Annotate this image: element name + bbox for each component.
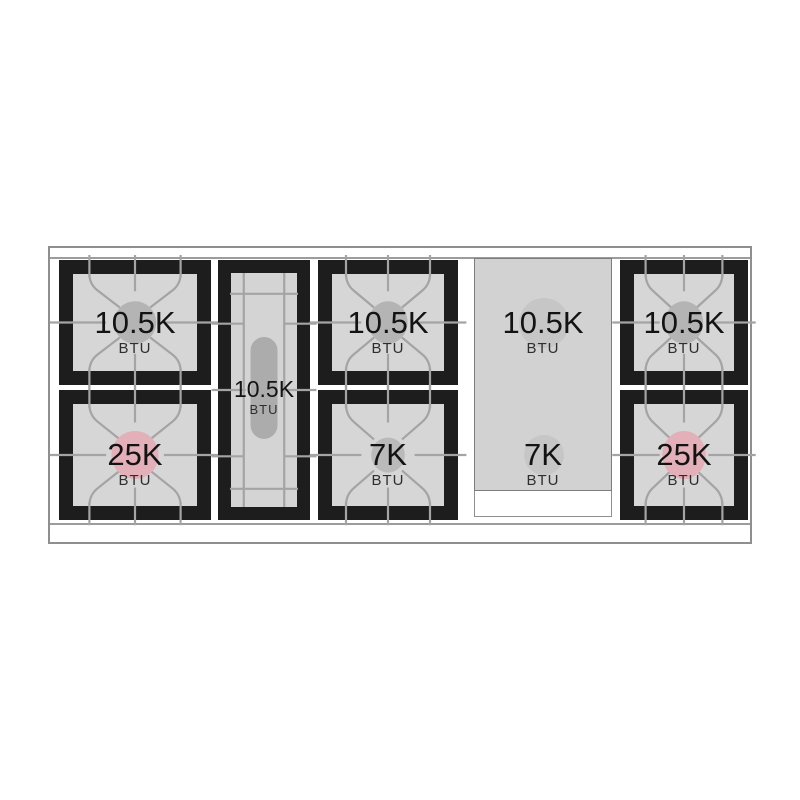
grate-lines (318, 390, 458, 520)
grate-lines (218, 260, 310, 520)
power-burner-ring (662, 431, 706, 479)
burner-grate-bottom-left: 25K BTU (59, 390, 211, 520)
grate-lines (620, 260, 748, 385)
burner-halo (524, 435, 564, 475)
burner-ring (368, 301, 407, 344)
product-diagram-image: 10.5K BTU 25K BTU 10.5K BTU (0, 0, 800, 800)
burner-ring (114, 301, 157, 344)
grate-lines (59, 260, 211, 385)
burner-grate-top-center: 10.5K BTU (318, 260, 458, 385)
burner-grate-top-left: 10.5K BTU (59, 260, 211, 385)
burner-halo (519, 298, 569, 348)
griddle-front-strip (474, 491, 612, 517)
burner-ring (371, 437, 405, 472)
cooktop-outline: 10.5K BTU 25K BTU 10.5K BTU (48, 246, 752, 544)
grate-lines (318, 260, 458, 385)
burner-grate-bottom-center: 7K BTU (318, 390, 458, 520)
grate-lines (59, 390, 211, 520)
griddle-panel: 10.5K BTU 7K BTU (474, 258, 612, 491)
burner-grate-bottom-right: 25K BTU (620, 390, 748, 520)
burner-grate-top-right: 10.5K BTU (620, 260, 748, 385)
oval-burner-grate: 10.5K BTU (218, 260, 310, 520)
grate-lines (620, 390, 748, 520)
oval-burner-bar (251, 337, 278, 439)
power-burner-ring (111, 431, 158, 479)
burner-ring (665, 301, 703, 344)
